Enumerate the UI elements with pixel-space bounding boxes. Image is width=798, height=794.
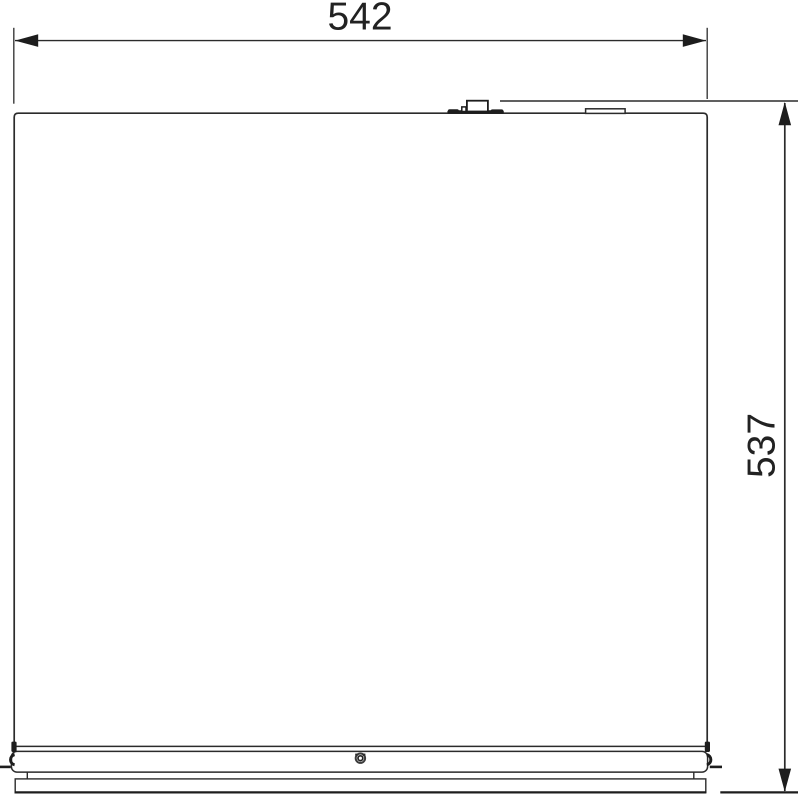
svg-text:542: 542 (327, 0, 392, 39)
svg-text:537: 537 (741, 413, 784, 478)
